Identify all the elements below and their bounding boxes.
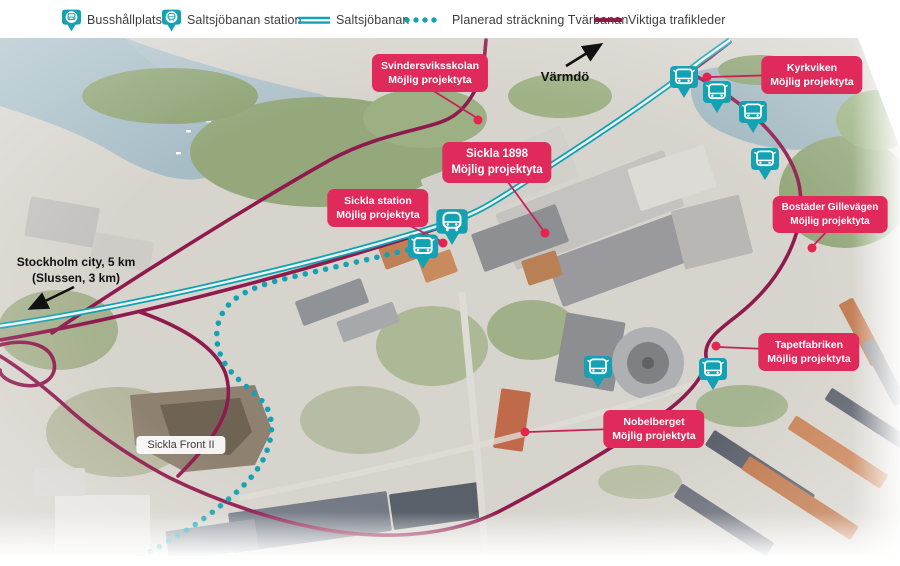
callout-line1: Kyrkviken xyxy=(770,61,853,75)
legend-item-saltsjobanan-station: Saltsjöbanan station xyxy=(162,7,302,33)
direction-label-stockholm: Stockholm city, 5 km (Slussen, 3 km) xyxy=(17,255,135,286)
legend-label: Busshållplats xyxy=(87,13,162,27)
callout-line1: Sickla station xyxy=(336,194,419,208)
callout-line2: Möjlig projektyta xyxy=(782,215,879,229)
callout-kyrkviken: Kyrkviken Möjlig projektyta xyxy=(761,56,862,94)
train-pin-icon xyxy=(162,8,181,33)
callout-line1: Svindersviksskolan xyxy=(381,59,479,73)
callout-line2: Möjlig projektyta xyxy=(767,352,850,366)
area-label-sickla-front: Sickla Front II xyxy=(136,436,225,454)
callout-svindersviksskolan: Svindersviksskolan Möjlig projektyta xyxy=(372,54,488,92)
stockholm-line1: Stockholm city, 5 km xyxy=(17,255,135,271)
aerial-map xyxy=(0,38,900,566)
double-teal-line-icon xyxy=(298,15,330,25)
callout-nobelberget: Nobelberget Möjlig projektyta xyxy=(603,410,704,448)
legend-label: Viktiga trafikleder xyxy=(628,13,726,27)
callout-line2: Möjlig projektyta xyxy=(451,163,542,179)
callout-line2: Möjlig projektyta xyxy=(612,429,695,443)
callout-sickla-station: Sickla station Möjlig projektyta xyxy=(327,189,428,227)
legend-item-trafikleder: Viktiga trafikleder xyxy=(594,7,726,33)
direction-label-varmdo: Värmdö xyxy=(541,69,589,86)
legend-item-busshallplats: Busshållplats xyxy=(62,7,162,33)
legend-label: Saltsjöbanan station xyxy=(187,13,302,27)
dotted-teal-line-icon xyxy=(404,16,446,24)
map-canvas xyxy=(0,38,900,566)
callout-bostader-gillevagen: Bostäder Gillevägen Möjlig projektyta xyxy=(773,196,888,233)
legend-label: Saltsjöbanan xyxy=(336,13,409,27)
callout-line1: Bostäder Gillevägen xyxy=(782,201,879,215)
callout-line1: Tapetfabriken xyxy=(767,338,850,352)
legend-item-saltsjobanan: Saltsjöbanan xyxy=(298,7,409,33)
callout-line1: Sickla 1898 xyxy=(451,147,542,163)
callout-line2: Möjlig projektyta xyxy=(381,73,479,87)
callout-line2: Möjlig projektyta xyxy=(770,75,853,89)
callout-sickla-1898: Sickla 1898 Möjlig projektyta xyxy=(442,142,551,183)
solid-crimson-line-icon xyxy=(594,16,622,24)
legend-bar: Busshållplats Saltsjöbanan station Salts… xyxy=(0,0,900,38)
bus-pin-icon xyxy=(62,8,81,33)
callout-line1: Nobelberget xyxy=(612,415,695,429)
callout-tapetfabriken: Tapetfabriken Möjlig projektyta xyxy=(758,333,859,371)
sickla-map-figure: Busshållplats Saltsjöbanan station Salts… xyxy=(0,0,900,566)
stockholm-line2: (Slussen, 3 km) xyxy=(17,271,135,287)
callout-line2: Möjlig projektyta xyxy=(336,208,419,222)
